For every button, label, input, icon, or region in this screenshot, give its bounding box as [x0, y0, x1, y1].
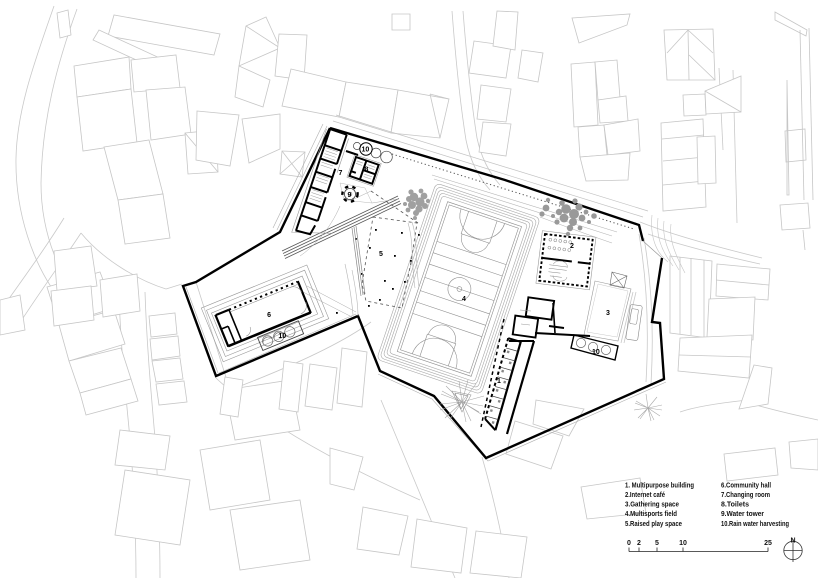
svg-text:5: 5: [379, 251, 383, 258]
svg-text:5: 5: [655, 540, 659, 547]
svg-text:4: 4: [462, 296, 466, 303]
svg-text:7: 7: [339, 170, 343, 177]
svg-text:10.Rain water harvesting: 10.Rain water harvesting: [721, 521, 789, 528]
svg-text:9.Water tower: 9.Water tower: [721, 511, 764, 518]
svg-text:6: 6: [267, 312, 271, 319]
svg-text:10: 10: [679, 540, 687, 547]
svg-text:0: 0: [627, 540, 631, 547]
svg-text:1: 1: [497, 378, 501, 385]
svg-text:2: 2: [570, 243, 574, 250]
svg-text:2.Internet café: 2.Internet café: [625, 492, 665, 499]
svg-text:10: 10: [592, 349, 600, 356]
svg-text:8: 8: [365, 167, 369, 174]
svg-text:1. Multipurpose building: 1. Multipurpose building: [625, 483, 694, 490]
svg-text:9: 9: [348, 192, 352, 199]
svg-text:5.Raised play space: 5.Raised play space: [625, 521, 682, 528]
svg-text:6.Community hall: 6.Community hall: [721, 483, 771, 490]
svg-text:10: 10: [362, 147, 370, 154]
svg-text:7.Changing room: 7.Changing room: [721, 492, 770, 499]
svg-text:2: 2: [637, 540, 641, 547]
svg-text:3: 3: [606, 310, 610, 317]
svg-text:3.Gathering space: 3.Gathering space: [625, 502, 679, 509]
svg-text:8.Toilets: 8.Toilets: [721, 502, 749, 509]
svg-text:N: N: [790, 538, 795, 545]
svg-text:4.Multisports field: 4.Multisports field: [625, 511, 677, 518]
svg-text:25: 25: [764, 540, 772, 547]
svg-text:10: 10: [278, 333, 286, 340]
